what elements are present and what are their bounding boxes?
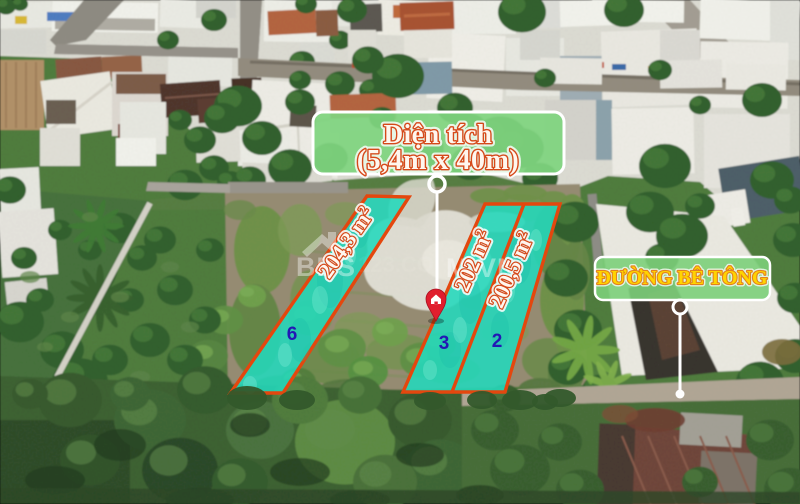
svg-text:6: 6 <box>287 324 298 345</box>
svg-text:(5,4m x 40m): (5,4m x 40m) <box>357 145 519 176</box>
svg-text:3: 3 <box>439 333 450 354</box>
svg-text:2: 2 <box>492 331 503 352</box>
svg-text:ĐƯỜNG BÊ TÔNG: ĐƯỜNG BÊ TÔNG <box>596 265 768 289</box>
svg-text:123.CO: 123.CO <box>358 252 434 277</box>
